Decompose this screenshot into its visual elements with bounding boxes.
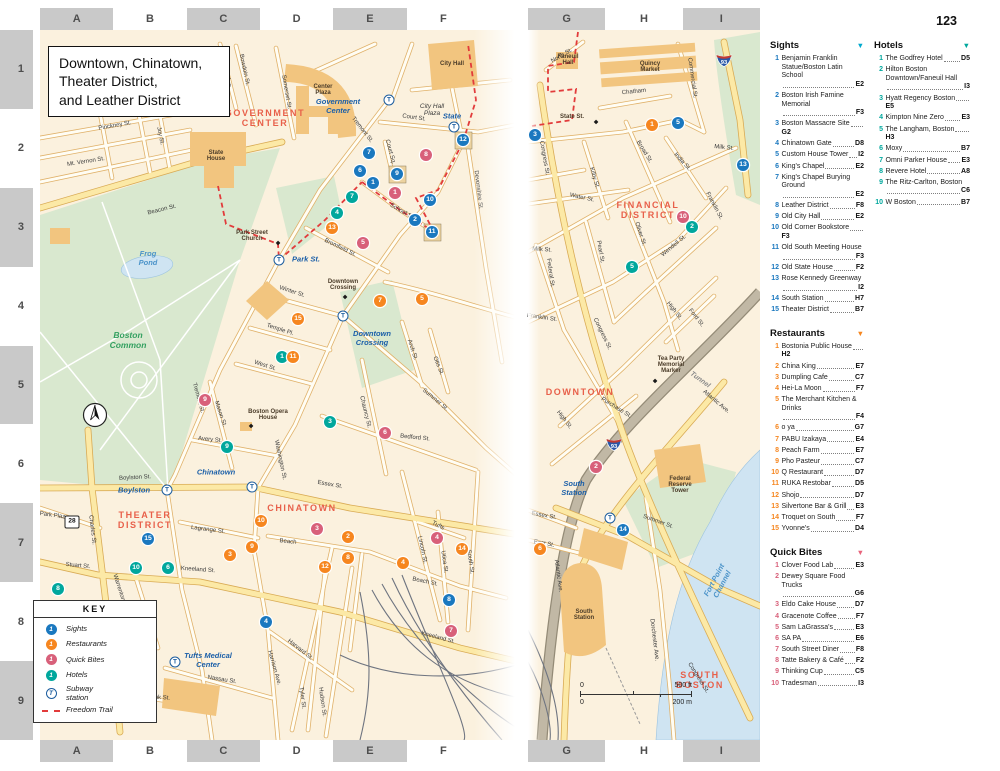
item-number: 1 [770, 343, 779, 360]
item-gridref: F7 [856, 613, 864, 622]
item-number: 2 [874, 66, 883, 92]
map-marker-restaurant-5: 5 [416, 293, 428, 305]
grid-letter-G: G [528, 740, 605, 762]
list-item: 10TradesmanI3 [770, 680, 864, 689]
item-gridref: D7 [855, 492, 864, 501]
map-marker-sight-10: 10 [424, 194, 436, 206]
map-label: West St. [253, 360, 276, 373]
map-marker-restaurant-8: 8 [342, 552, 354, 564]
map-label: Chauncy St. [358, 395, 372, 428]
list-item: 11Old South Meeting HouseF3 [770, 244, 864, 261]
map-label: Mason St. [213, 400, 227, 428]
map-marker-hotel-7: 7 [346, 191, 358, 203]
item-name: o ya [782, 424, 795, 433]
item-name: Revere Hotel [886, 168, 927, 177]
map-label: South St. [465, 549, 474, 574]
item-number: 10 [770, 680, 779, 689]
dotted-leader [827, 436, 854, 443]
list-section-sights: Sights▼1Benjamin Franklin Statue/Boston … [770, 40, 864, 315]
grid-letter-D: D [260, 8, 333, 30]
map-label: Franklin St. [704, 191, 724, 221]
list-item: 1Clover Food LabE3 [770, 562, 864, 571]
grid-number-7: 7 [0, 503, 33, 582]
item-name: Clover Food Lab [782, 562, 834, 571]
map-label: Beacon St. [147, 204, 177, 217]
map-label: High St. [555, 410, 573, 431]
scale-m-zero: 0 [580, 699, 584, 706]
map-marker-sight-1: 1 [367, 177, 379, 189]
list-item: 12ShojoD7 [770, 492, 864, 501]
item-name: Chinatown Gate [782, 140, 832, 149]
list-item: 6o yaG7 [770, 424, 864, 433]
map-marker-hotel-5: 5 [626, 261, 638, 273]
item-gridref: G2 [782, 129, 791, 138]
map-label: Mt. Vernon St. [67, 156, 106, 168]
map-label: Arch St. [406, 339, 418, 361]
map-marker-hotel-6: 6 [162, 562, 174, 574]
dotted-leader [838, 613, 855, 620]
list-item: 7South Street DinerF8 [770, 646, 864, 655]
poi-diamond-icon: ◆ [653, 378, 658, 385]
map-label: Joy St. [155, 126, 165, 145]
map-marker-restaurant-3: 3 [224, 549, 236, 561]
map-marker-quickbite-2: 2 [590, 461, 602, 473]
map-label: Ford St. [687, 308, 705, 329]
item-name: Bostonia Public House [782, 343, 852, 352]
map-label: Congress St. [592, 317, 613, 351]
map-label: Purchase St. [600, 396, 632, 419]
dotted-leader [837, 601, 854, 608]
item-gridref: D7 [855, 469, 864, 478]
list-item: 7Omni Parker HouseE3 [874, 157, 970, 166]
map-label: Faneuil Hall [557, 54, 578, 66]
map-label: Chinatown [197, 468, 235, 477]
key-label: Hotels [66, 671, 88, 680]
dotted-leader [825, 295, 855, 302]
item-gridref: I2 [858, 151, 864, 160]
dotted-leader [887, 83, 964, 90]
map-label: Atlantic Ave. [701, 389, 730, 415]
list-item: 10W BostonB7 [874, 199, 970, 208]
item-number: 9 [770, 213, 779, 222]
list-item: 4Kimpton Nine ZeroE3 [874, 114, 970, 123]
item-gridref: F2 [856, 264, 864, 273]
item-gridref: E2 [855, 163, 864, 172]
item-name: Pho Pasteur [782, 458, 821, 467]
item-number: 9 [770, 458, 779, 467]
map-label: Beach St. [412, 576, 439, 587]
map-label: Hudson St. [317, 687, 327, 717]
item-number: 4 [874, 114, 883, 123]
grid-letter-B: B [113, 740, 186, 762]
item-number: 13 [770, 275, 779, 292]
map-label: Commercial St. [686, 57, 698, 98]
dotted-leader [802, 635, 854, 642]
grid-letter-H: H [605, 740, 682, 762]
grid-letter-E: E [333, 8, 406, 30]
item-gridref: F8 [856, 646, 864, 655]
map-marker-hotel-9: 9 [221, 441, 233, 453]
map-marker-restaurant-1: 1 [646, 119, 658, 131]
item-name: South Street Diner [782, 646, 840, 655]
list-item: 9Thinking CupC5 [770, 668, 864, 677]
item-gridref: B7 [961, 199, 970, 208]
dotted-leader [783, 253, 855, 260]
item-name: Gracenote Coffee [782, 613, 837, 622]
map-label: Federal St. [545, 258, 555, 288]
map-label: GOVERNMENT CENTER [225, 108, 306, 128]
list-section-restaurants: Restaurants▼1Bostonia Public HouseH22Chi… [770, 328, 864, 534]
item-gridref: E4 [855, 436, 864, 445]
list-item: 2Dewey Square Food TrucksG6 [770, 573, 864, 599]
item-number: 4 [770, 385, 779, 394]
scale-m-label: 200 m [673, 699, 692, 706]
list-header-quick_bites: Quick Bites▼ [770, 547, 864, 558]
item-gridref: E2 [855, 213, 864, 222]
map-marker-quickbite-9: 9 [199, 394, 211, 406]
map-label: Harvard St. [286, 638, 314, 661]
map-label: Boston Common [110, 330, 147, 350]
item-number: 14 [770, 295, 779, 304]
poi-diamond-icon: ◆ [343, 294, 348, 301]
item-gridref: C5 [855, 668, 864, 677]
map-label: High St. [665, 301, 683, 322]
item-number: 7 [770, 646, 779, 655]
item-gridref: C7 [855, 458, 864, 467]
item-name: King's Chapel Burying Ground [782, 174, 865, 191]
dotted-leader [825, 163, 854, 170]
map-marker-sight-5: 5 [672, 117, 684, 129]
item-name: PABU Izakaya [782, 436, 827, 445]
list-item: 6MoxyB7 [874, 145, 970, 154]
map-panel-right: FINANCIAL DISTRICTDOWNTOWNSOUTH BOSTONFo… [528, 30, 760, 740]
dotted-leader [944, 55, 960, 62]
dotted-leader [818, 680, 858, 687]
dotted-leader [783, 284, 858, 291]
map-label: Charles St. [87, 515, 97, 545]
item-gridref: I2 [858, 284, 864, 293]
key-item-subway-station: TSubway station [34, 683, 156, 705]
item-number: 10 [770, 469, 779, 478]
map-marker-hotel-2: 2 [686, 221, 698, 233]
dotted-leader [917, 199, 960, 206]
dotted-leader [821, 458, 854, 465]
grid-letter-I: I [683, 740, 760, 762]
dotted-leader [956, 95, 969, 102]
list-item: 5Sam LaGrassa'sE3 [770, 624, 864, 633]
item-name: The Ritz-Carlton, Boston [886, 179, 963, 188]
item-name: Hyatt Regency Boston [886, 95, 956, 104]
dotted-leader [851, 120, 863, 127]
map-marker-quickbite-6: 6 [379, 427, 391, 439]
item-gridref: B7 [855, 306, 864, 315]
item-gridref: D4 [855, 525, 864, 534]
grid-letter-A: A [40, 8, 113, 30]
map-marker-restaurant-13: 13 [326, 222, 338, 234]
item-number: 9 [874, 179, 883, 196]
section-arrow-icon: ▼ [963, 41, 970, 50]
item-gridref: E5 [886, 103, 895, 112]
map-label: Stuart St. [65, 562, 90, 570]
list-item: 14South StationH7 [770, 295, 864, 304]
grid-number-9: 9 [0, 661, 33, 740]
grid-number-6: 6 [0, 424, 33, 503]
item-name: Rose Kennedy Greenway [782, 275, 862, 284]
map-label: Essex St. [531, 511, 557, 521]
item-gridref: D7 [855, 601, 864, 610]
key-label: Subway station [66, 685, 93, 702]
map-label: Avery St. [198, 436, 223, 445]
dotted-leader [796, 424, 854, 431]
item-name: Old Corner Bookstore [782, 224, 850, 233]
map-label: Somerset St. [280, 74, 292, 109]
dotted-leader [811, 525, 854, 532]
item-name: Troquet on South [782, 514, 836, 523]
list-item: 10Old Corner BookstoreF3 [770, 224, 864, 241]
list-section-quick_bites: Quick Bites▼1Clover Food LabE32Dewey Squ… [770, 547, 864, 688]
item-gridref: F3 [782, 233, 790, 242]
map-label: Tea Party Memorial Marker [658, 356, 685, 374]
list-item: 14Troquet on SouthF7 [770, 514, 864, 523]
map-label: Tremont St. [350, 116, 374, 144]
item-name: Old State House [782, 264, 833, 273]
item-number: 11 [770, 244, 779, 261]
item-number: 15 [770, 525, 779, 534]
sidebar-column-right: Hotels▼1The Godfrey HotelD52Hilton Bosto… [874, 40, 970, 220]
dotted-leader [821, 213, 854, 220]
map-label: Lagrange St. [191, 525, 226, 535]
item-gridref: E7 [855, 447, 864, 456]
item-name: Boston Irish Famine Memorial [782, 92, 865, 109]
item-number: 6 [770, 424, 779, 433]
key-symbol: T [42, 688, 60, 699]
list-item: 3Dumpling CafeC7 [770, 374, 864, 383]
dotted-leader [850, 224, 863, 231]
dotted-leader [823, 385, 855, 392]
map-label: Fort Point Channel [702, 562, 735, 602]
list-item: 13Silvertone Bar & GrillE3 [770, 503, 864, 512]
item-name: Tatte Bakery & Café [782, 657, 844, 666]
item-gridref: B7 [961, 145, 970, 154]
dotted-leader [824, 469, 854, 476]
dotted-leader [955, 126, 969, 133]
item-name: Moxy [886, 145, 903, 154]
list-item: 4Hei-La MoonF7 [770, 385, 864, 394]
item-number: 5 [874, 126, 883, 143]
item-number: 8 [874, 168, 883, 177]
item-number: 5 [770, 624, 779, 633]
list-item: 1Benjamin Franklin Statue/Boston Latin S… [770, 55, 864, 89]
map-marker-restaurant-7: 7 [374, 295, 386, 307]
map-marker-quickbite-1: 1 [389, 187, 401, 199]
map-label: Broad St. [635, 140, 653, 164]
item-name: The Langham, Boston [886, 126, 955, 135]
item-number: 11 [770, 480, 779, 489]
map-marker-restaurant-4: 4 [397, 557, 409, 569]
item-name: SA PA [782, 635, 802, 644]
list-item: 9The Ritz-Carlton, BostonC6 [874, 179, 970, 196]
item-gridref: E7 [855, 363, 864, 372]
list-item: 6SA PAE6 [770, 635, 864, 644]
dotted-leader [847, 503, 854, 510]
item-name: Old City Hall [782, 213, 821, 222]
item-gridref: D5 [961, 55, 970, 64]
key-label: Quick Bites [66, 656, 104, 665]
map-label: Tufts [431, 520, 445, 531]
item-number: 3 [770, 601, 779, 610]
map-marker-hotel-8: 8 [52, 583, 64, 595]
key-item-restaurants: 1Restaurants [34, 637, 156, 652]
dotted-leader [783, 81, 855, 88]
item-number: 5 [770, 396, 779, 422]
subway-station-icon: T [384, 95, 395, 106]
item-number: 6 [770, 635, 779, 644]
map-label: Summer St. [642, 514, 674, 530]
dotted-leader [948, 157, 960, 164]
map-label: Devonshire St. [473, 170, 484, 210]
item-number: 3 [770, 120, 779, 137]
item-number: 10 [770, 224, 779, 241]
list-item: 2China KingE7 [770, 363, 864, 372]
item-name: Yvonne's [782, 525, 810, 534]
map-marker-sight-7: 7 [363, 147, 375, 159]
map-label: Lincoln St. [416, 536, 428, 565]
list-item: 10Q RestaurantD7 [770, 469, 864, 478]
item-number: 8 [770, 657, 779, 666]
map-label: Pearl St. [595, 240, 605, 264]
grid-letter-F: F [407, 740, 480, 762]
map-label: Boylston [118, 486, 150, 495]
item-number: 7 [770, 436, 779, 445]
key-item-quick-bites: 1Quick Bites [34, 652, 156, 667]
dotted-leader [783, 590, 854, 597]
item-number: 4 [770, 613, 779, 622]
dotted-leader [834, 264, 855, 271]
map-marker-quickbite-3: 3 [311, 523, 323, 535]
dotted-leader [830, 202, 855, 209]
map-label: City Hall Plaza [420, 103, 444, 117]
map-label: Tyler St. [297, 687, 306, 710]
item-gridref: F2 [856, 657, 864, 666]
map-label: Oliver St. [633, 221, 646, 246]
marker-icon: 1 [46, 639, 57, 650]
item-number: 1 [770, 562, 779, 571]
item-number: 10 [874, 199, 883, 208]
map-label: Boylston St. [119, 474, 151, 482]
item-number: 14 [770, 514, 779, 523]
map-marker-sight-14: 14 [617, 524, 629, 536]
map-label: Milk St. [714, 144, 734, 152]
item-number: 7 [874, 157, 883, 166]
item-name: Thinking Cup [782, 668, 823, 677]
map-label: Otis St. [432, 356, 445, 376]
map-label: Beach [279, 538, 297, 546]
item-number: 8 [770, 447, 779, 456]
list-item: 9Old City HallE2 [770, 213, 864, 222]
dotted-leader [849, 151, 857, 158]
item-name: Dumpling Cafe [782, 374, 828, 383]
grid-number-5: 5 [0, 346, 33, 425]
subway-station-icon: T [605, 513, 616, 524]
item-gridref: C7 [855, 374, 864, 383]
grid-letter-C: C [187, 8, 260, 30]
list-item: 9Pho PasteurC7 [770, 458, 864, 467]
map-label: Pinckney St. [98, 120, 132, 132]
map-label: City Hall [440, 61, 464, 67]
subway-station-icon: T [247, 482, 258, 493]
map-label: Court St. [402, 113, 426, 122]
map-label: Milk St. [532, 246, 552, 253]
list-item: 13Rose Kennedy GreenwayI2 [770, 275, 864, 292]
list-item: 8Revere HotelA8 [874, 168, 970, 177]
map-marker-restaurant-6: 6 [534, 543, 546, 555]
freedom-trail-icon [42, 710, 60, 712]
dotted-leader [833, 140, 854, 147]
map-label: Summer St. [421, 388, 449, 413]
key-item-freedom-trail: Freedom Trail [34, 704, 156, 717]
map-marker-sight-11: 11 [426, 226, 438, 238]
map-marker-hotel-10: 10 [130, 562, 142, 574]
item-number: 6 [874, 145, 883, 154]
list-item: 8Peach FarmE7 [770, 447, 864, 456]
dotted-leader [832, 480, 854, 487]
item-gridref: H2 [782, 351, 791, 360]
item-gridref: I3 [964, 83, 970, 92]
list-header-sights: Sights▼ [770, 40, 864, 51]
dotted-leader [845, 657, 855, 664]
map-label: Washington St. [273, 440, 287, 481]
poi-diamond-icon: ◆ [276, 240, 281, 247]
map-marker-sight-13: 13 [737, 159, 749, 171]
map-label: Essex St. [317, 480, 343, 490]
item-gridref: E3 [855, 624, 864, 633]
page-number: 123 [905, 14, 957, 28]
dotted-leader [836, 514, 854, 521]
list-item: 12Old State HouseF2 [770, 264, 864, 273]
svg-text:93: 93 [611, 444, 618, 450]
item-number: 3 [874, 95, 883, 112]
map-label: Downtown Crossing [353, 329, 391, 347]
list-section-hotels: Hotels▼1The Godfrey HotelD52Hilton Bosto… [874, 40, 970, 207]
item-gridref: E3 [855, 562, 864, 571]
item-gridref: F4 [856, 413, 864, 422]
map-label: State House [207, 150, 225, 162]
marker-icon: 1 [46, 654, 57, 665]
item-name: RUKA Restobar [782, 480, 831, 489]
dotted-leader [783, 109, 855, 116]
item-gridref: C6 [961, 187, 970, 196]
map-label: Bromfield St. [323, 238, 357, 258]
list-item: 15Theater DistrictB7 [770, 306, 864, 315]
item-name: Eldo Cake House [782, 601, 836, 610]
item-name: Theater District [782, 306, 829, 315]
section-arrow-icon: ▼ [857, 41, 864, 50]
item-number: 9 [770, 668, 779, 677]
subway-station-icon: T [162, 485, 173, 496]
map-label: State St. [560, 114, 584, 120]
item-name: Leather District [782, 202, 829, 211]
list-title: Hotels [874, 40, 903, 51]
item-number: 1 [770, 55, 779, 89]
map-marker-sight-8: 8 [443, 594, 455, 606]
list-title: Quick Bites [770, 547, 822, 558]
subway-station-icon: T [46, 688, 57, 699]
grid-letter-H: H [605, 8, 682, 30]
list-item: 7King's Chapel Burying GroundE2 [770, 174, 864, 200]
map-marker-restaurant-15: 15 [292, 313, 304, 325]
item-number: 8 [770, 202, 779, 211]
map-label: Federal Reserve Tower [668, 476, 691, 494]
